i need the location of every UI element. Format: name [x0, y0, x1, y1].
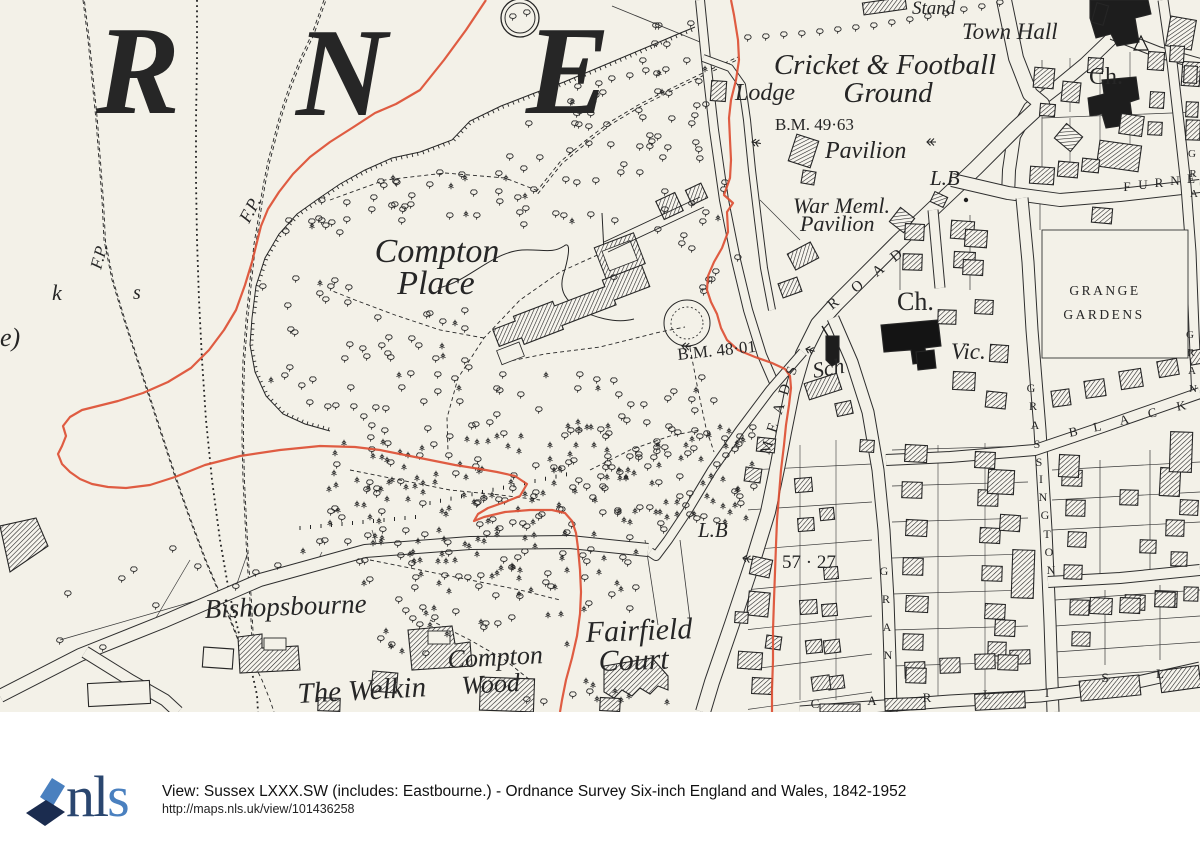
svg-text:A: A [1031, 418, 1040, 432]
svg-text:O: O [1045, 545, 1054, 559]
svg-text:R: R [95, 2, 180, 141]
svg-text:The Welkin: The Welkin [297, 671, 427, 710]
svg-text:R: R [923, 690, 932, 705]
svg-text:Lodge: Lodge [734, 80, 795, 106]
svg-text:N: N [1039, 490, 1048, 504]
svg-text:N: N [1047, 563, 1056, 577]
svg-text:G: G [1041, 508, 1050, 522]
svg-text:Wood: Wood [461, 668, 522, 700]
svg-text:nls: nls [66, 764, 128, 829]
svg-text:e): e) [0, 323, 20, 352]
svg-text:Vic.: Vic. [951, 339, 986, 364]
svg-text:N: N [884, 648, 893, 662]
svg-text:S: S [1034, 437, 1041, 451]
svg-text:Bishopsbourne: Bishopsbourne [204, 588, 367, 624]
svg-text:A: A [867, 693, 877, 708]
svg-text:Place: Place [396, 265, 474, 302]
svg-text:F: F [1123, 179, 1130, 194]
svg-text:N: N [1189, 383, 1197, 395]
svg-text:R: R [1029, 399, 1037, 413]
svg-text:R: R [1189, 168, 1197, 180]
svg-text:Ch.: Ch. [1089, 64, 1123, 90]
svg-text:S: S [1101, 670, 1108, 685]
svg-text:N: N [1170, 173, 1180, 188]
svg-text:U: U [1138, 177, 1148, 192]
svg-text:C: C [811, 696, 820, 711]
svg-text:Court: Court [598, 643, 670, 678]
svg-text:R: R [1187, 347, 1195, 359]
svg-text:R: R [1155, 175, 1164, 190]
svg-text:Ground: Ground [843, 77, 933, 109]
svg-text:E: E [525, 2, 610, 141]
svg-text:S: S [1036, 455, 1043, 469]
svg-text:Stand: Stand [912, 0, 956, 19]
svg-text:GRANGE: GRANGE [1069, 283, 1140, 298]
svg-text:G: G [1188, 148, 1196, 160]
svg-text:G: G [880, 564, 889, 578]
svg-text:I: I [1045, 685, 1049, 700]
svg-text:A: A [883, 620, 892, 634]
svg-text:L.B: L.B [697, 518, 728, 542]
svg-text:G: G [1186, 329, 1194, 341]
svg-text:A: A [1190, 188, 1198, 200]
svg-text:Pavilion: Pavilion [824, 138, 906, 164]
svg-text:N: N [294, 4, 391, 143]
svg-text:Ch.: Ch. [897, 287, 934, 316]
svg-text:R: R [882, 592, 890, 606]
svg-text:I: I [1039, 472, 1043, 486]
svg-text:GARDENS: GARDENS [1063, 307, 1144, 322]
svg-text:A: A [1188, 365, 1196, 377]
svg-text:T: T [1043, 527, 1051, 541]
svg-text:L: L [983, 687, 991, 702]
svg-text:Town Hall: Town Hall [962, 19, 1058, 44]
svg-text:57 · 27: 57 · 27 [782, 552, 836, 573]
svg-text:B.M. 49·63: B.M. 49·63 [775, 115, 854, 134]
svg-text:G: G [1027, 381, 1036, 395]
svg-text:s: s [133, 282, 141, 304]
svg-text:k: k [52, 280, 63, 305]
svg-text:L.B: L.B [929, 166, 960, 190]
svg-text:Pavilion: Pavilion [799, 211, 875, 236]
svg-text:L: L [1156, 666, 1164, 681]
